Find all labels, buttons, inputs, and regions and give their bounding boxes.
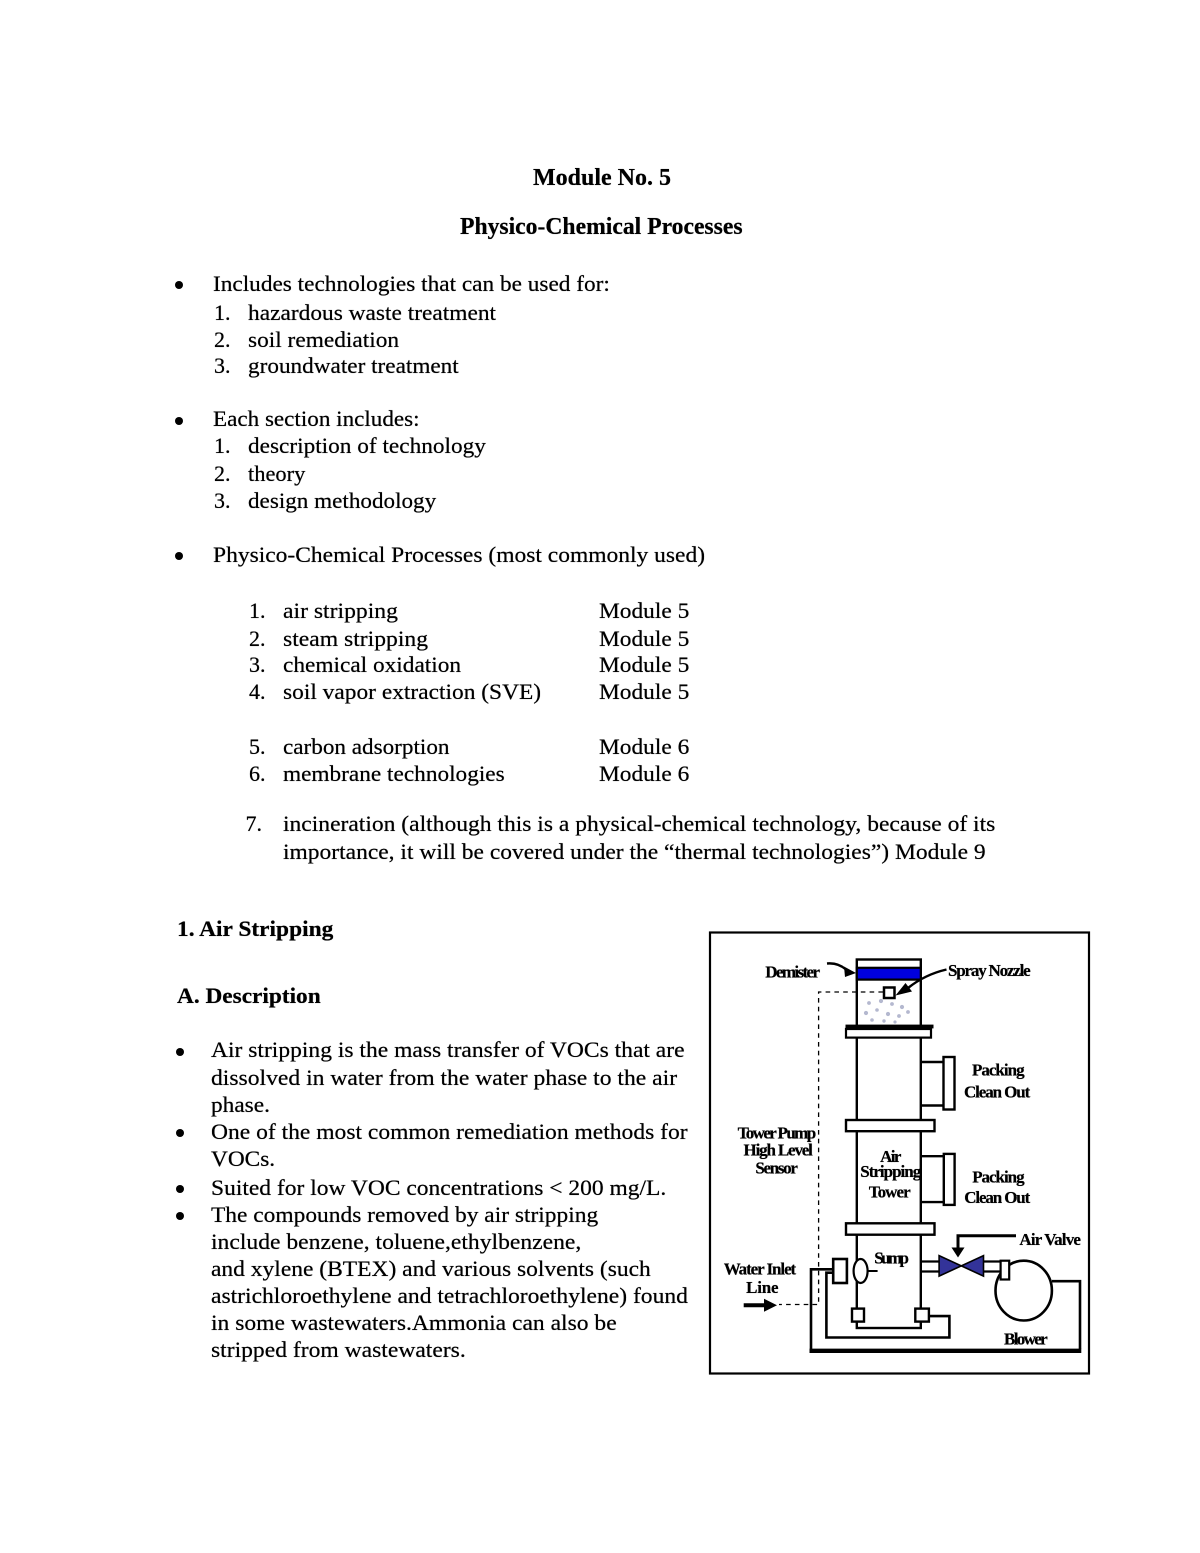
svg-text:Clean Out: Clean Out	[964, 1188, 1030, 1207]
svg-text:Stripping: Stripping	[860, 1162, 921, 1181]
svg-text:Packing: Packing	[972, 1168, 1025, 1187]
svg-text:Tower: Tower	[869, 1182, 911, 1201]
svg-text:Tower Pump: Tower Pump	[738, 1123, 817, 1142]
svg-text:Water Inlet: Water Inlet	[724, 1260, 797, 1279]
svg-text:Air Valve: Air Valve	[1019, 1230, 1081, 1249]
svg-text:Sump: Sump	[874, 1248, 909, 1267]
svg-text:Demister: Demister	[765, 963, 820, 982]
svg-text:Line: Line	[746, 1278, 779, 1297]
svg-text:High Level: High Level	[744, 1141, 814, 1160]
svg-text:Spray Nozzle: Spray Nozzle	[948, 961, 1031, 980]
svg-text:Packing: Packing	[972, 1061, 1025, 1080]
svg-text:Clean Out: Clean Out	[964, 1083, 1031, 1102]
svg-text:Blower: Blower	[1004, 1329, 1048, 1348]
svg-text:Sensor: Sensor	[755, 1159, 798, 1178]
